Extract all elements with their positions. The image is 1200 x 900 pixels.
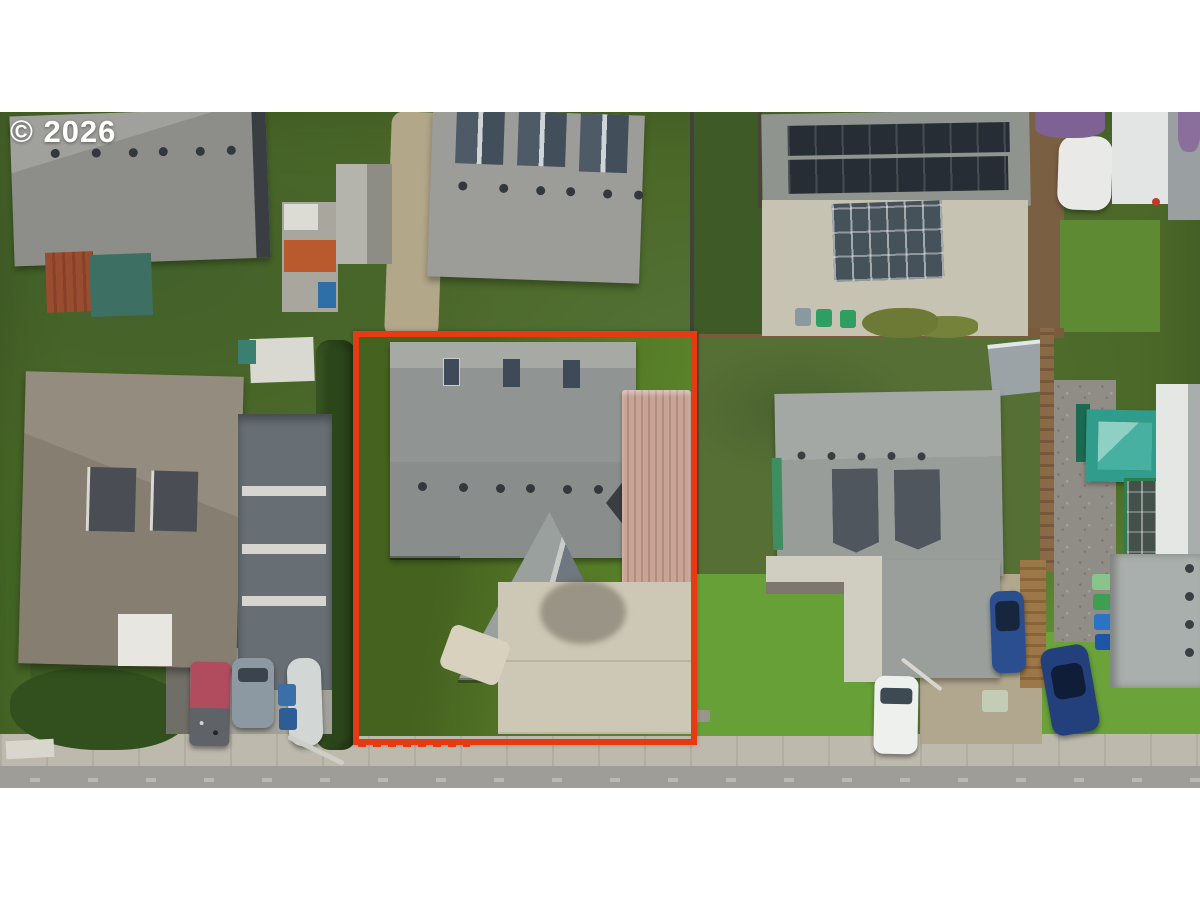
white-panel	[284, 204, 318, 230]
blue-bins	[278, 684, 296, 706]
red-pickup-truck	[189, 662, 230, 747]
neighbor-house-top-middle-roof	[427, 112, 645, 284]
roof-vents	[797, 451, 805, 459]
roof-gable	[517, 112, 567, 167]
house-wall-shadow	[251, 112, 270, 258]
side-alley	[692, 112, 762, 334]
waste-bin	[840, 310, 856, 328]
alley-fence	[690, 112, 694, 334]
white-car	[873, 676, 918, 755]
green-roof-edge	[772, 458, 784, 550]
garden-plot	[1060, 220, 1160, 332]
garden-shed-roof	[987, 339, 1046, 396]
utility-box	[982, 690, 1008, 712]
walkway-band	[242, 486, 326, 496]
solar-panel-array	[788, 156, 1009, 194]
listing-photo-page: © 2026	[0, 0, 1200, 900]
roof-gable	[579, 114, 629, 174]
white-outbuilding	[1112, 112, 1168, 204]
waste-bin	[795, 308, 811, 326]
gray-car	[232, 658, 274, 728]
patio-slab	[118, 614, 172, 666]
dirt-strip	[1026, 112, 1064, 332]
roof-vents	[458, 181, 467, 190]
flowering-bush	[1178, 112, 1200, 152]
neighbor-house-right-wing	[868, 560, 1000, 678]
copyright-watermark: © 2026	[10, 114, 116, 150]
street	[0, 766, 1200, 788]
aerial-photo: © 2026	[0, 112, 1200, 788]
dormer	[86, 467, 137, 532]
walkway-band	[242, 544, 326, 554]
white-trailer	[1057, 135, 1114, 211]
dormer	[832, 468, 879, 553]
concrete-path	[844, 582, 882, 682]
neighbor-house-right-roof	[774, 390, 1003, 580]
street-curb-marks	[30, 778, 1200, 782]
path-gravel-edge	[766, 582, 846, 594]
dormer	[150, 471, 199, 532]
truck-bed	[189, 708, 230, 747]
neighbor-house-bottom-right-roof	[1110, 554, 1200, 688]
shrubs	[862, 308, 938, 338]
red-object	[1152, 198, 1160, 206]
property-boundary-outline	[353, 331, 697, 745]
roof-vents	[51, 149, 60, 158]
windshield	[1050, 662, 1087, 701]
windshield	[238, 668, 268, 682]
blue-suv	[990, 590, 1027, 673]
topiary-hedge	[10, 668, 188, 750]
waste-bin	[816, 309, 832, 327]
dormer	[894, 469, 941, 550]
roof-vents	[1185, 564, 1194, 573]
wood-fence	[1040, 328, 1054, 572]
property-boundary-dashes	[358, 742, 470, 747]
neighbor-house-top-right-roof	[761, 112, 1031, 210]
neighbor-rowhouse-roof	[238, 414, 332, 690]
sunroom-glass-roof	[832, 200, 945, 282]
blue-bin	[318, 282, 336, 308]
planter-boxes	[284, 240, 336, 272]
teal-container	[238, 340, 256, 364]
flowering-bush	[1035, 112, 1105, 138]
teal-tarp-roof	[89, 253, 153, 317]
concrete-path	[766, 556, 882, 584]
windshield	[995, 601, 1020, 632]
garden-work-area	[282, 202, 338, 312]
white-shed-roof	[249, 337, 314, 383]
walkway-band	[242, 596, 326, 606]
teal-pavilion-roof	[1085, 409, 1164, 482]
solar-panel-array	[787, 122, 1009, 156]
rusty-shed-roof	[45, 251, 95, 313]
windshield	[880, 688, 912, 705]
roof-gable	[455, 112, 505, 165]
retaining-wall	[6, 739, 55, 759]
outbuilding-roof	[336, 164, 392, 264]
